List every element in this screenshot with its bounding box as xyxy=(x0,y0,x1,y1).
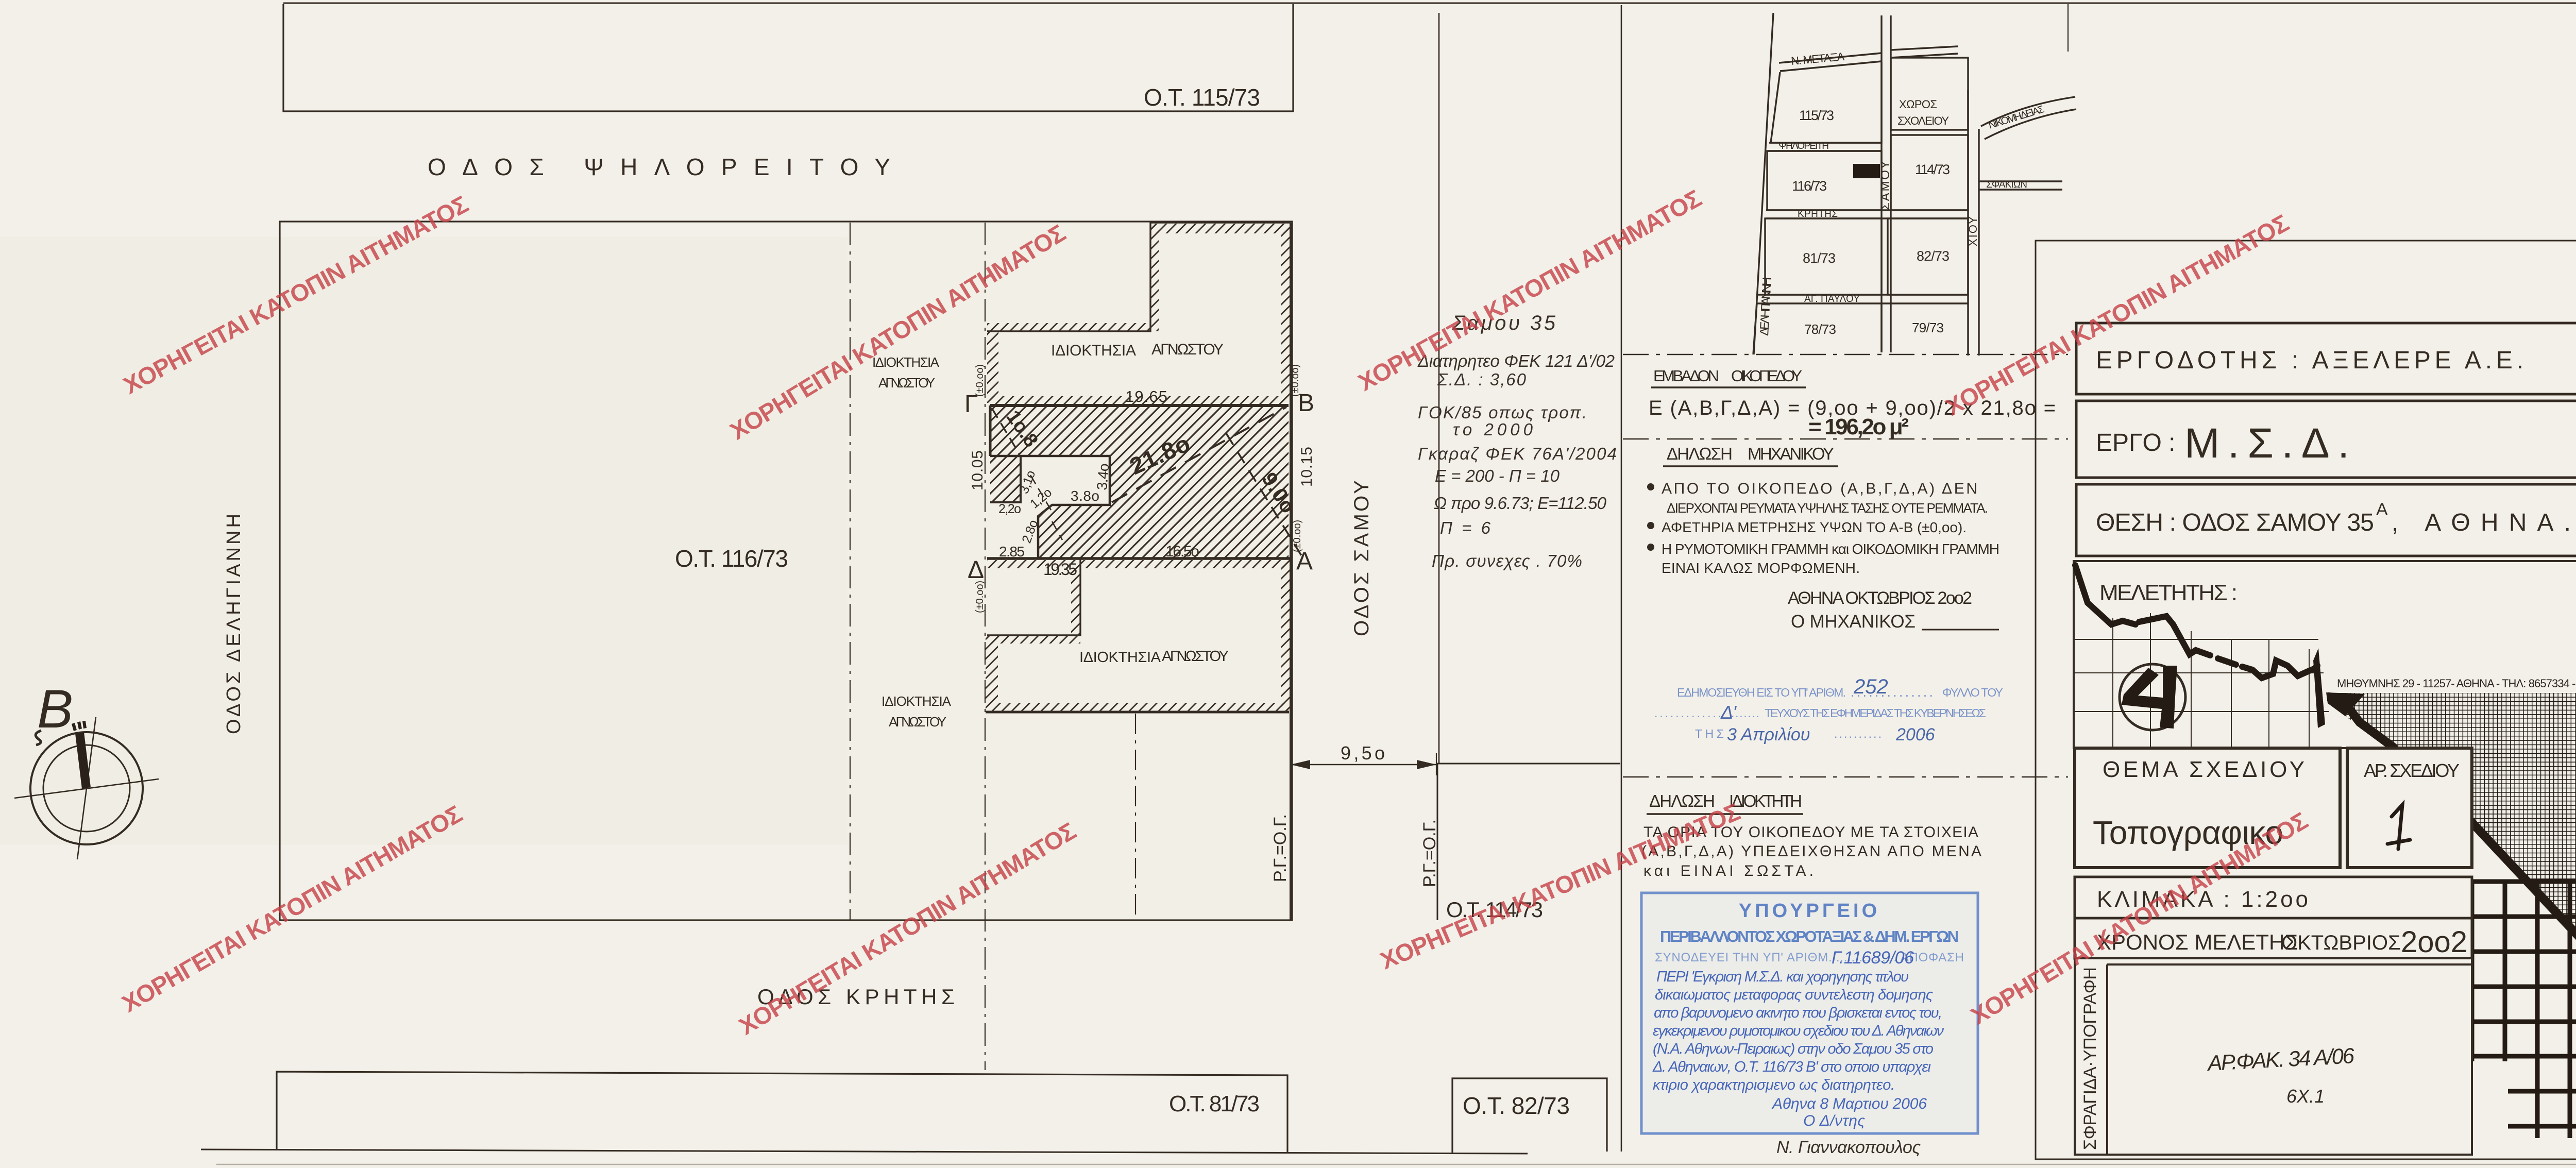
svg-text:ΟΙΚΟΠΕΔΟΥ: ΟΙΚΟΠΕΔΟΥ xyxy=(1731,367,1802,385)
svg-text:ΧΩΡΟΣ: ΧΩΡΟΣ xyxy=(1899,98,1937,111)
svg-text:απο βαρυνομενο ακινητο που βρι: απο βαρυνομενο ακινητο που βρισκεται εντ… xyxy=(1654,1005,1942,1021)
svg-text:3.8ο: 3.8ο xyxy=(1071,488,1099,504)
svg-text:Ν. Γιαννακοπουλος: Ν. Γιαννακοπουλος xyxy=(1776,1138,1921,1157)
svg-text:(±0.οο): (±0.οο) xyxy=(1292,520,1303,552)
svg-text:ΕΔΗΜΟΣΙΕΥΘΗ ΕΙΣ ΤΟ ΥΠ' ΑΡΙΘ: ΕΔΗΜΟΣΙΕΥΘΗ ΕΙΣ ΤΟ ΥΠ' ΑΡΙΘΜ. xyxy=(1677,686,1846,699)
svg-text:Ω προ 9.6.73; Ε=112.50: Ω προ 9.6.73; Ε=112.50 xyxy=(1434,494,1607,513)
svg-text:ΟΚΤΩΒΡΙΟΣ: ΟΚΤΩΒΡΙΟΣ xyxy=(2281,932,2401,954)
svg-text:ΙΔΙΟΚΤΗΣΙΑ: ΙΔΙΟΚΤΗΣΙΑ xyxy=(882,693,952,709)
svg-text:ΣΥΝΟΔΕΥΕΙ ΤΗΝ ΥΠ' ΑΡΙΘΜ. ...: ΣΥΝΟΔΕΥΕΙ ΤΗΝ ΥΠ' ΑΡΙΘΜ. ...............… xyxy=(1655,951,1964,964)
svg-text:ΓΟΚ/85 οπως τροπ.: ΓΟΚ/85 οπως τροπ. xyxy=(1418,403,1587,422)
svg-text:114/73: 114/73 xyxy=(1915,162,1950,177)
svg-text:ΘΕΣΗ : ΟΔΟΣ ΣΑΜΟΥ 35: ΘΕΣΗ : ΟΔΟΣ ΣΑΜΟΥ 35 xyxy=(2096,509,2374,536)
svg-text:2οο2: 2οο2 xyxy=(2401,925,2467,959)
svg-text:ΑΓΝΩΣΤΟΥ: ΑΓΝΩΣΤΟΥ xyxy=(1151,341,1224,358)
svg-text:Ο ΜΗΧΑΝΙΚΟΣ: Ο ΜΗΧΑΝΙΚΟΣ xyxy=(1791,612,1916,632)
svg-text:ΣΦΡΑΓΙΔΑ·ΥΠΟΓΡΑΦΗ: ΣΦΡΑΓΙΔΑ·ΥΠΟΓΡΑΦΗ xyxy=(2080,967,2100,1150)
svg-text:(Ν.Α. Αθηνων-Πειραιως) στην οδ: (Ν.Α. Αθηνων-Πειραιως) στην οδο Σαμου 35… xyxy=(1653,1041,1934,1057)
svg-text:= 196,2ο μ²: = 196,2ο μ² xyxy=(1808,414,1909,439)
svg-text:82/73: 82/73 xyxy=(1917,248,1950,264)
svg-text:116/73: 116/73 xyxy=(1792,178,1827,194)
svg-text:Ο.Τ. 82/73: Ο.Τ. 82/73 xyxy=(1463,1092,1570,1119)
svg-text:ΜΕΛΕΤΗΤΗΣ :: ΜΕΛΕΤΗΤΗΣ : xyxy=(2099,580,2238,605)
svg-text:6Χ.1: 6Χ.1 xyxy=(2286,1086,2325,1107)
svg-text:(±0.οο): (±0.οο) xyxy=(974,364,986,397)
svg-text:ΣΧΟΛΕΙΟΥ: ΣΧΟΛΕΙΟΥ xyxy=(1897,114,1949,127)
svg-text:δικαιωματος μεταφορας συντελεσ: δικαιωματος μεταφορας συντελεστη δομησης xyxy=(1655,987,1934,1003)
svg-text:Ο.Τ. 81/73: Ο.Τ. 81/73 xyxy=(1169,1091,1260,1116)
svg-text:ΜΗΧΑΝΙΚΟΥ: ΜΗΧΑΝΙΚΟΥ xyxy=(1748,444,1834,463)
svg-text:19.65: 19.65 xyxy=(1125,387,1167,405)
svg-text:115/73: 115/73 xyxy=(1799,108,1834,123)
svg-text:Σ.Δ. : 3,60: Σ.Δ. : 3,60 xyxy=(1437,370,1527,389)
svg-text:Πρ. συνεχες . 70%: Πρ. συνεχες . 70% xyxy=(1432,551,1582,570)
svg-text:Διατηρητεο ΦΕΚ 121 Δ'/02: Διατηρητεο ΦΕΚ 121 Δ'/02 xyxy=(1417,351,1615,370)
svg-text:ΙΔΙΟΚΤΗΤΗ: ΙΔΙΟΚΤΗΤΗ xyxy=(1729,791,1802,810)
svg-text:ΙΔΙΟΚΤΗΣΙΑ: ΙΔΙΟΚΤΗΣΙΑ xyxy=(1051,342,1136,359)
svg-text:Π = 6: Π = 6 xyxy=(1440,518,1491,537)
svg-text:ΑΓ. ΠΑΥΛΟΥ: ΑΓ. ΠΑΥΛΟΥ xyxy=(1804,294,1860,304)
svg-text:10.15: 10.15 xyxy=(1298,447,1315,487)
svg-text:Β: Β xyxy=(37,679,73,739)
svg-text:ΕΙΝΑΙ ΚΑΛΩΣ ΜΟΡΦΩΜΕΝΗ.: ΕΙΝΑΙ ΚΑΛΩΣ ΜΟΡΦΩΜΕΝΗ. xyxy=(1662,560,1860,576)
svg-text:εγκεκριμενου ρυμοτομικου σχεδι: εγκεκριμενου ρυμοτομικου σχεδιου του Δ. … xyxy=(1653,1023,1944,1039)
svg-text:19.35: 19.35 xyxy=(1043,560,1077,579)
svg-text:Δ: Δ xyxy=(968,556,984,584)
svg-text:Ο.Τ. 116/73: Ο.Τ. 116/73 xyxy=(675,545,788,572)
svg-text:252: 252 xyxy=(1853,675,1888,698)
svg-text:Μ.Σ.Δ.: Μ.Σ.Δ. xyxy=(2184,420,2349,467)
svg-text:Ο.Τ. 115/73: Ο.Τ. 115/73 xyxy=(1144,84,1260,111)
svg-text:ΑΘΗΝΑ ΟΚΤΩΒΡΙΟΣ 2οο2: ΑΘΗΝΑ ΟΚΤΩΒΡΙΟΣ 2οο2 xyxy=(1788,588,1972,608)
svg-text:ΑΡ. ΣΧΕΔΙΟΥ: ΑΡ. ΣΧΕΔΙΟΥ xyxy=(2364,760,2460,781)
svg-text:ΔΗΛΩΣΗ: ΔΗΛΩΣΗ xyxy=(1667,444,1733,463)
svg-text:(±0.οο): (±0.οο) xyxy=(1290,364,1301,397)
svg-text:Ρ.Γ.=Ο.Γ.: Ρ.Γ.=Ο.Γ. xyxy=(1420,819,1439,887)
svg-text:3.4ο: 3.4ο xyxy=(1094,463,1112,491)
svg-text:ΘΕΜΑ ΣΧΕΔΙΟΥ: ΘΕΜΑ ΣΧΕΔΙΟΥ xyxy=(2103,757,2307,782)
svg-text:ΙΔΙΟΚΤΗΣΙΑ: ΙΔΙΟΚΤΗΣΙΑ xyxy=(1079,649,1161,666)
svg-text:2006: 2006 xyxy=(1895,725,1935,744)
svg-text:ΠΕΡΙΒΑΛΛΟΝΤΟΣ ΧΩΡΟΤΑΞΙΑΣ &: ΠΕΡΙΒΑΛΛΟΝΤΟΣ ΧΩΡΟΤΑΞΙΑΣ & ΔΗΜ. ΕΡΓΩΝ xyxy=(1660,927,1959,945)
svg-text:ΑΓΝΩΣΤΟΥ: ΑΓΝΩΣΤΟΥ xyxy=(1162,648,1229,665)
svg-text:ΣΦΑΚΙΩΝ: ΣΦΑΚΙΩΝ xyxy=(1986,179,2027,190)
svg-text:ΤΕΥΧΟΥΣ ΤΗΣ ΕΦΗΜΕΡΙΔΑΣ ΤΗΣ: ΤΕΥΧΟΥΣ ΤΗΣ ΕΦΗΜΕΡΙΔΑΣ ΤΗΣ ΚΥΒΕΡΝΗΣΕΩΣ xyxy=(1765,706,1986,720)
svg-text:2.85: 2.85 xyxy=(999,544,1025,560)
svg-text:16.5ο: 16.5ο xyxy=(1165,543,1199,560)
svg-text:10.05: 10.05 xyxy=(969,450,986,490)
svg-text:ΑΦΕΤΗΡΙΑ ΜΕΤΡΗΣΗΣ ΥΨΩΝ ΤΟ: ΑΦΕΤΗΡΙΑ ΜΕΤΡΗΣΗΣ ΥΨΩΝ ΤΟ Α-Β (±0,οο). xyxy=(1662,519,1967,535)
svg-text:81/73: 81/73 xyxy=(1803,250,1836,266)
svg-text:9,5ο: 9,5ο xyxy=(1341,742,1385,764)
svg-text:ΕΜΒΑΔΟΝ: ΕΜΒΑΔΟΝ xyxy=(1653,367,1719,385)
svg-text:ΑΓΝΩΣΤΟΥ: ΑΓΝΩΣΤΟΥ xyxy=(878,375,935,391)
svg-text:3 Απριλίου: 3 Απριλίου xyxy=(1727,725,1810,744)
svg-text:78/73: 78/73 xyxy=(1804,321,1836,337)
svg-text:Γ.11689/06: Γ.11689/06 xyxy=(1832,948,1914,968)
svg-text:ΟΔΟΣ ΣΑΜΟΥ: ΟΔΟΣ ΣΑΜΟΥ xyxy=(1350,480,1373,636)
svg-text:κτιριο χαρακτηρισμενο ως διατη: κτιριο χαρακτηρισμενο ως διατηρητεο. xyxy=(1653,1077,1895,1093)
svg-text:Η ΡΥΜΟΤΟΜΙΚΗ ΓΡΑΜΜΗ και ΟΙ: Η ΡΥΜΟΤΟΜΙΚΗ ΓΡΑΜΜΗ και ΟΙΚΟΔΟΜΙΚΗ ΓΡΑΜΜ… xyxy=(1662,541,1999,557)
svg-text:2,2ο: 2,2ο xyxy=(998,502,1021,516)
svg-text:ΠΕΡΙ 'Εγκριση Μ.Σ.Δ. και χορηγ: ΠΕΡΙ 'Εγκριση Μ.Σ.Δ. και χορηγησης τιτλο… xyxy=(1656,969,1909,985)
svg-text:Ε = 200 - Π = 10: Ε = 200 - Π = 10 xyxy=(1435,466,1560,485)
svg-text:ΔΗΛΩΣΗ: ΔΗΛΩΣΗ xyxy=(1649,791,1715,810)
svg-text:(±0.οο): (±0.οο) xyxy=(974,581,986,613)
svg-text:ΑΓΝΩΣΤΟΥ: ΑΓΝΩΣΤΟΥ xyxy=(889,714,946,730)
svg-text:ΧΙΟΥ: ΧΙΟΥ xyxy=(1967,216,1979,246)
svg-text:Ρ.Γ.=Ο.Γ.: Ρ.Γ.=Ο.Γ. xyxy=(1270,814,1290,882)
svg-text:Ο Δ/ντης: Ο Δ/ντης xyxy=(1803,1112,1865,1129)
svg-text:Δ. Αθηναιων, Ο.Τ. 116/73 Β' στ: Δ. Αθηναιων, Ο.Τ. 116/73 Β' στο οποιο υπ… xyxy=(1652,1059,1931,1075)
svg-text:ΦΥΛΛΟ ΤΟΥ: ΦΥΛΛΟ ΤΟΥ xyxy=(1942,686,2003,699)
svg-text:Γκαραζ ΦΕΚ 76Α'/2004: Γκαραζ ΦΕΚ 76Α'/2004 xyxy=(1418,444,1617,463)
svg-text:Δ': Δ' xyxy=(1720,702,1737,723)
svg-text:Αθηνα 8 Μαρτιου 2006: Αθηνα 8 Μαρτιου 2006 xyxy=(1771,1095,1927,1112)
svg-text:Α: Α xyxy=(2376,500,2388,519)
svg-text:ΟΔΟΣ ΨΗΛΟΡΕΙΤΟΥ: ΟΔΟΣ ΨΗΛΟΡΕΙΤΟΥ xyxy=(428,154,890,180)
svg-text:ΕΡΓΟ :: ΕΡΓΟ : xyxy=(2096,429,2175,456)
svg-text:ΔΙΕΡΧΟΝΤΑΙ ΡΕΥΜΑΤΑ ΥΨΗΛΗΣ ΤΑΣΗ: ΔΙΕΡΧΟΝΤΑΙ ΡΕΥΜΑΤΑ ΥΨΗΛΗΣ ΤΑΣΗΣ ΟΥΤΕ ΡΕΜ… xyxy=(1667,500,1988,516)
svg-text:79/73: 79/73 xyxy=(1912,320,1944,335)
svg-text:ΥΠΟΥΡΓΕΙΟ: ΥΠΟΥΡΓΕΙΟ xyxy=(1739,900,1880,922)
svg-text:ΨΗΛΟΡΕΙΤΗ: ΨΗΛΟΡΕΙΤΗ xyxy=(1778,141,1829,151)
svg-text:ΤΗΣ: ΤΗΣ xyxy=(1695,727,1724,740)
svg-text:ΜΗΘΥΜΝΗΣ 29 - 11257- ΑΘΗΝΑ - Τ: ΜΗΘΥΜΝΗΣ 29 - 11257- ΑΘΗΝΑ - ΤΗΛ: 865733… xyxy=(2337,677,2576,690)
